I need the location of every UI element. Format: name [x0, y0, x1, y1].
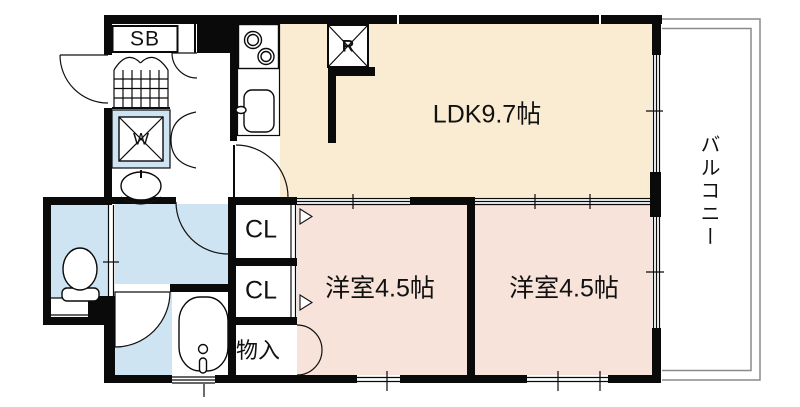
- entrance-door: [60, 55, 108, 103]
- closet-upper-label: CL: [245, 218, 277, 243]
- bathroom-window: [172, 377, 215, 397]
- stove-icon: [239, 25, 279, 69]
- western-room-1-label: 洋室4.5帖: [325, 277, 435, 302]
- western-room-2-label: 洋室4.5帖: [509, 277, 619, 302]
- ldk-label: LDK9.7帖: [433, 103, 541, 128]
- toilet-icon: [62, 248, 99, 301]
- entrance-tile-grid: [112, 57, 170, 108]
- kitchen-door: [234, 145, 288, 197]
- washroom-floor: [115, 204, 228, 284]
- bathtub-icon: [179, 297, 228, 373]
- washing-machine-label: W: [133, 131, 149, 148]
- storage-label: 物入: [236, 340, 280, 362]
- hall-closet-door: [172, 53, 197, 78]
- washer-closet-doors: [171, 112, 196, 168]
- floorplan-drawing: [0, 0, 800, 407]
- refrigerator-label: R: [342, 38, 354, 55]
- shoe-box-label: SB: [130, 29, 160, 50]
- kitchen-counter: [236, 24, 280, 136]
- closet-lower-label: CL: [245, 279, 277, 304]
- balcony-label: バルコニー: [698, 134, 718, 249]
- floorplan: SB W R LDK9.7帖 CL CL 物入 洋室4.5帖 洋室4.5帖 バル…: [0, 0, 800, 407]
